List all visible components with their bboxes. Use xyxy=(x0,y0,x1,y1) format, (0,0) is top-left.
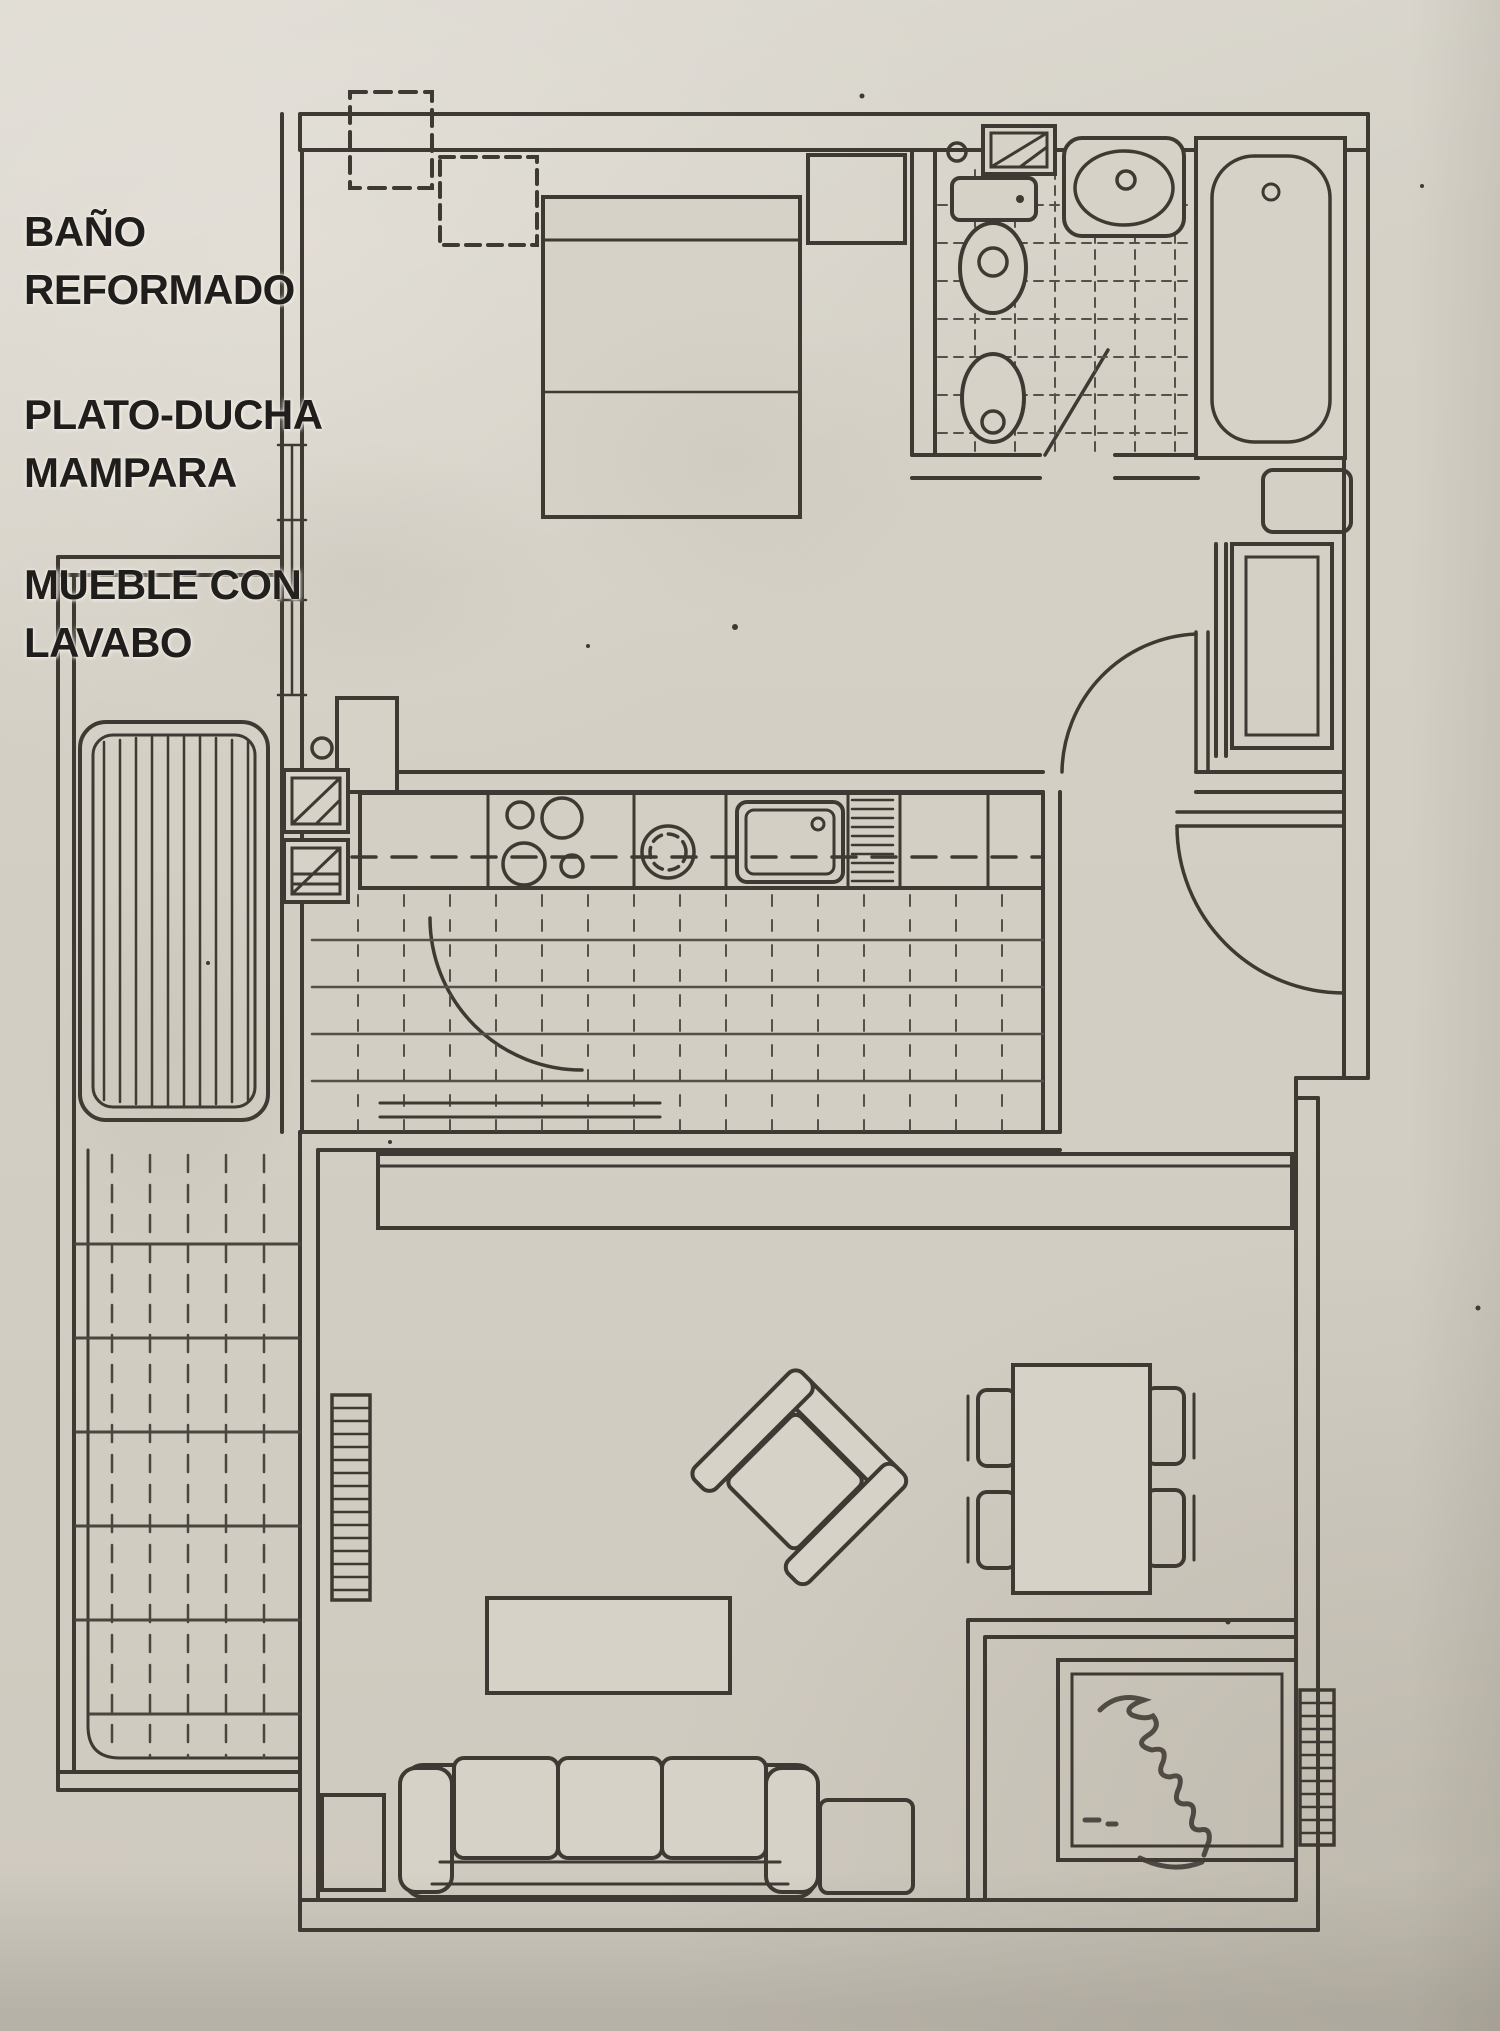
annotation-line: MAMPARA xyxy=(24,444,323,502)
washbasin-icon xyxy=(1064,138,1184,236)
annotation-line: BAÑO xyxy=(24,203,295,261)
annotation-plato-ducha-mampara: PLATO-DUCHA MAMPARA xyxy=(24,386,323,502)
dining-chair xyxy=(968,1390,1016,1466)
hall-closet-small xyxy=(1263,470,1351,532)
bedroom xyxy=(440,155,905,517)
sideboard xyxy=(378,1154,1292,1228)
sofa-cushion xyxy=(558,1758,662,1858)
annotation-line: REFORMADO xyxy=(24,261,295,319)
sofa-cushion xyxy=(454,1758,558,1858)
coffee-table xyxy=(487,1598,730,1693)
balcony-frame-outer xyxy=(80,722,268,1120)
cabinet xyxy=(322,1795,384,1890)
bedroom-south-wall xyxy=(302,772,1043,792)
kitchen xyxy=(284,738,1043,1130)
dining-table xyxy=(1013,1365,1150,1593)
armchair xyxy=(688,1366,910,1588)
hall-south-wall xyxy=(1196,772,1344,792)
balcony-frame-inner xyxy=(93,735,255,1107)
hall-closet-large-inner xyxy=(1246,557,1318,735)
hall-door-leaf xyxy=(1196,632,1208,772)
terrace-bottom-wall xyxy=(58,1772,300,1790)
scanned-floor-plan-photo: BAÑO REFORMADO PLATO-DUCHA MAMPARA MUEBL… xyxy=(0,0,1500,2031)
hall-door-swing-arc xyxy=(1062,634,1196,772)
entrance-door-leaf xyxy=(1177,812,1344,826)
pot-ring xyxy=(642,826,694,878)
sofa-armrest-right xyxy=(766,1768,818,1892)
dining-set xyxy=(968,1365,1194,1593)
water-heater-icon xyxy=(284,840,348,902)
vestibule-west-wall xyxy=(1043,792,1060,1132)
handwritten-signature xyxy=(1085,1698,1209,1868)
dish-rack xyxy=(852,800,893,881)
nightstand-right xyxy=(808,155,905,243)
annotation-line: MUEBLE CON xyxy=(24,556,301,614)
stamp-box-outer xyxy=(1058,1660,1296,1860)
dining-chair xyxy=(1146,1388,1194,1464)
bidet-icon xyxy=(962,354,1024,442)
bottom-wall xyxy=(300,1900,1318,1930)
terrace-tile-floor xyxy=(76,1155,300,1758)
side-table xyxy=(820,1800,913,1893)
bathroom xyxy=(938,126,1345,458)
lower-terrace xyxy=(76,1150,300,1758)
bathtub-icon xyxy=(1196,138,1345,458)
radiator-left xyxy=(332,1395,370,1600)
living-left-wall xyxy=(300,1132,318,1930)
right-wall-step xyxy=(1296,1078,1368,1098)
window-icon xyxy=(948,126,1055,174)
bedroom-bathroom-wall xyxy=(912,150,935,455)
kitchen-counter xyxy=(360,793,1043,888)
dining-chair xyxy=(968,1492,1016,1568)
cooktop-burners xyxy=(503,798,583,885)
hall xyxy=(1216,470,1351,756)
threshold xyxy=(380,1103,660,1117)
entrance-door-swing-arc xyxy=(1177,826,1344,993)
sofa-armrest-left xyxy=(400,1768,452,1892)
annotation-line: LAVABO xyxy=(24,614,301,672)
kitchen-tile-floor xyxy=(312,895,1043,1130)
annotation-mueble-con-lavabo: MUEBLE CON LAVABO xyxy=(24,556,301,672)
kitchen-south-wall xyxy=(300,1132,1060,1150)
annotation-bano-reformado: BAÑO REFORMADO xyxy=(24,203,295,319)
signature-stamp-area xyxy=(968,1620,1296,1900)
kitchen-knob-dot xyxy=(312,738,332,758)
right-wall-upper xyxy=(1344,114,1368,1078)
left-outer-wall xyxy=(58,557,74,1790)
hall-wall-stub xyxy=(1216,544,1226,756)
annotation-line: PLATO-DUCHA xyxy=(24,386,323,444)
stamp-box-inner xyxy=(1072,1674,1282,1846)
living-dining-room xyxy=(322,1154,1334,1900)
kitchen-sink xyxy=(737,802,843,882)
nightstand-left xyxy=(440,157,537,245)
sofa xyxy=(400,1758,818,1897)
washing-machine-icon xyxy=(284,770,348,832)
balcony-slat-floor xyxy=(104,737,248,1105)
bathroom-south-wall xyxy=(912,455,1198,478)
sofa-cushion xyxy=(662,1758,766,1858)
dining-chair xyxy=(1146,1490,1194,1566)
double-bed xyxy=(543,197,800,517)
upper-balcony xyxy=(80,722,268,1120)
toilet-icon xyxy=(952,178,1036,313)
pillar xyxy=(350,92,432,188)
terrace-inner-border xyxy=(88,1150,300,1758)
